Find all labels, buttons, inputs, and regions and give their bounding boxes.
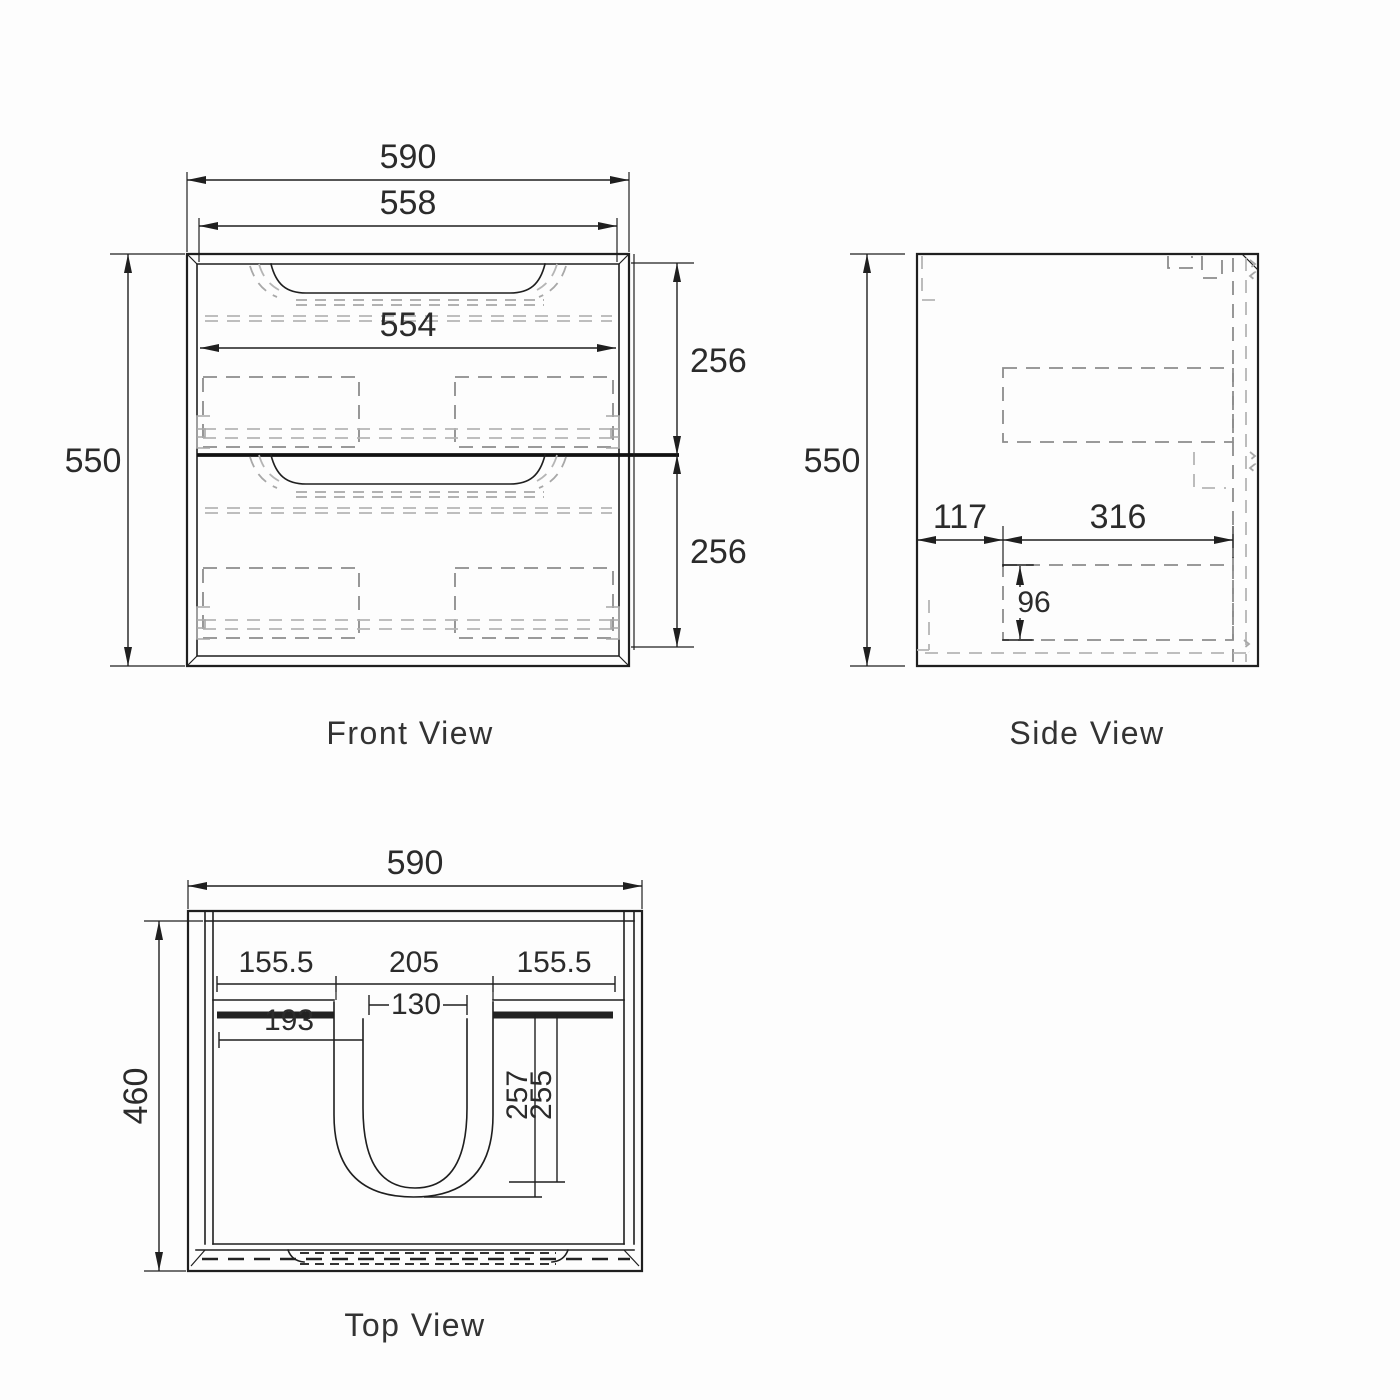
top-overall-depth-label: 460 (117, 1068, 155, 1125)
side-overall-height-label: 550 (804, 442, 861, 480)
top-counter-left-label: 155.5 (238, 946, 313, 979)
front-view: 590 558 554 550 256 256 Front View (65, 138, 747, 751)
top-counter-recess-label: 193 (264, 1004, 314, 1037)
side-dim-overall-height: 550 (804, 254, 905, 666)
front-dim-overall-height: 550 (65, 254, 185, 666)
top-counter-right-label: 155.5 (516, 946, 591, 979)
top-dim-basin-top-width: 130 (369, 988, 467, 1021)
front-dim-lower-drawer-height: 256 (631, 455, 747, 647)
front-lower-drawer-height-label: 256 (690, 533, 747, 571)
side-cabinet-outline (917, 254, 1258, 666)
top-front-rail-details (202, 1250, 630, 1264)
front-dim-inner-width: 558 (199, 184, 617, 262)
front-inner-width-label: 558 (380, 184, 437, 222)
side-view-title: Side View (1009, 715, 1164, 751)
top-dim-basin-depths: 257 255 (424, 1014, 565, 1197)
technical-drawing-canvas: 590 558 554 550 256 256 Front View (0, 0, 1400, 1400)
side-hidden-details (917, 256, 1255, 662)
front-overall-width-label: 590 (380, 138, 437, 176)
side-front-offset-label: 117 (933, 498, 987, 536)
side-dim-drawer-box-height: 96 (1003, 565, 1051, 640)
top-dim-counter-recess: 193 (219, 1004, 363, 1048)
side-dim-front-offset: 117 (917, 498, 1003, 540)
front-dim-drawer-face-width: 554 (200, 306, 616, 348)
front-dim-upper-drawer-height: 256 (631, 263, 747, 455)
top-basin-cutout-label: 205 (389, 946, 439, 979)
side-drawer-box-height-label: 96 (1017, 586, 1050, 619)
drawing-page: 590 558 554 550 256 256 Front View (0, 0, 1400, 1400)
front-drawer-face-width-label: 554 (380, 306, 437, 344)
side-view: 550 117 316 96 Side View (804, 254, 1258, 751)
front-overall-height-label: 550 (65, 442, 122, 480)
side-dim-drawer-box-depth: 316 (1003, 498, 1233, 567)
top-dim-overall-depth: 460 (117, 921, 203, 1271)
top-view-title: Top View (344, 1307, 485, 1343)
side-drawer-box-depth-label: 316 (1090, 498, 1147, 536)
top-view: 590 460 155.5 205 155.5 130 (117, 844, 642, 1343)
top-basin-depth-inner-label: 255 (525, 1070, 558, 1120)
top-overall-width-label: 590 (387, 844, 444, 882)
front-upper-drawer-height-label: 256 (690, 342, 747, 380)
top-dim-overall-width: 590 (188, 844, 642, 909)
front-view-title: Front View (326, 715, 493, 751)
top-basin-top-width-label: 130 (391, 988, 441, 1021)
